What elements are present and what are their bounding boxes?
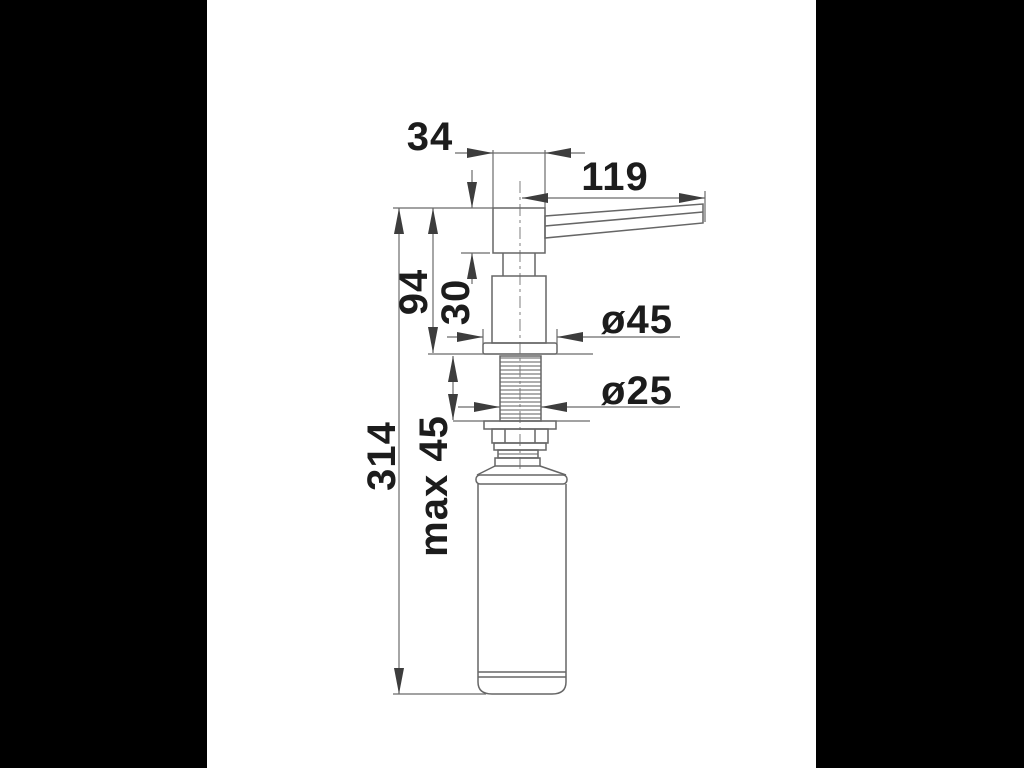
bottle-bottom <box>478 677 566 694</box>
dim-max-counter-thickness: max 45 <box>414 415 454 557</box>
bottle-shoulder <box>476 475 567 484</box>
dim-shank-diameter: ø25 <box>601 371 673 411</box>
threaded-shank <box>500 356 541 421</box>
dim-head-width: 34 <box>407 117 454 157</box>
dim-height-above-counter: 94 <box>394 269 434 316</box>
pump-head <box>493 208 545 253</box>
base-cylinder <box>492 276 546 343</box>
dispenser-technical-drawing <box>0 0 1024 768</box>
dispenser-body <box>476 204 703 694</box>
spout-lever <box>545 204 703 238</box>
lower-thread <box>498 450 538 458</box>
dim-head-height: 30 <box>436 279 476 326</box>
dim-spout-projection: 119 <box>581 157 649 197</box>
dim-flange-diameter: ø45 <box>601 300 673 340</box>
bottle-collar <box>495 458 540 466</box>
dim-total-height: 314 <box>362 421 402 491</box>
screenshot-stage: 34 119 94 30 ø45 ø25 max 45 314 <box>0 0 1024 768</box>
